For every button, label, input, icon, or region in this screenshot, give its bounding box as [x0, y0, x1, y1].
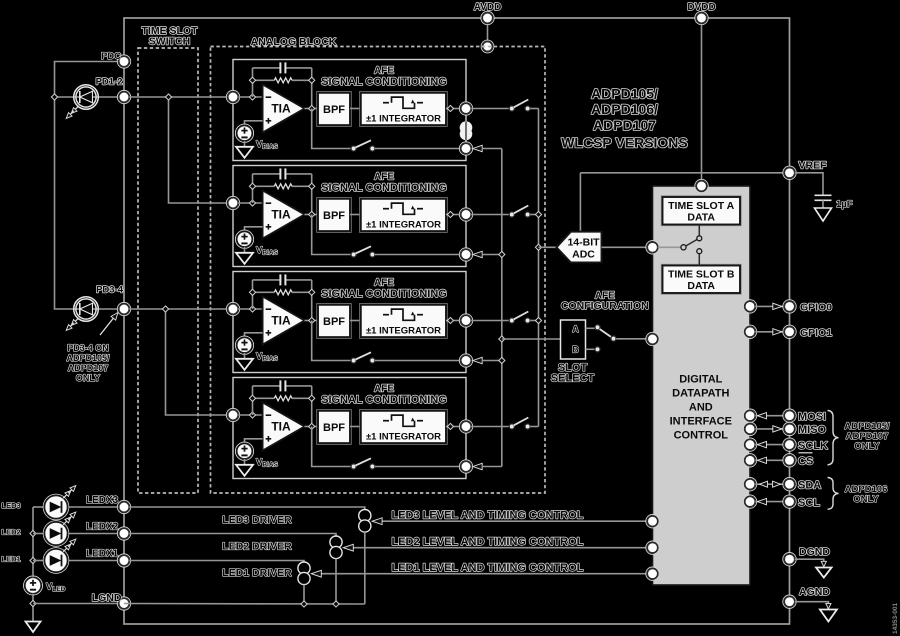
svg-text:1µF: 1µF: [836, 199, 853, 210]
svg-text:BPF: BPF: [323, 316, 345, 328]
svg-text:GPIO1: GPIO1: [800, 327, 832, 339]
svg-text:MISO: MISO: [798, 424, 827, 436]
svg-text:14353-001: 14353-001: [892, 603, 899, 634]
svg-text:LEDX1: LEDX1: [86, 549, 119, 560]
svg-text:ONLY: ONLY: [853, 494, 879, 505]
svg-text:ADPD107: ADPD107: [593, 117, 656, 133]
svg-text:DATA: DATA: [687, 280, 715, 292]
svg-text:ADC: ADC: [572, 248, 595, 260]
svg-text:LEDX3: LEDX3: [86, 495, 119, 506]
svg-text:TIA: TIA: [271, 420, 291, 434]
svg-text:INTERFACE: INTERFACE: [670, 416, 732, 428]
svg-text:AFE: AFE: [374, 66, 394, 77]
svg-text:DVDD: DVDD: [687, 2, 715, 13]
svg-text:BPF: BPF: [323, 422, 345, 434]
svg-text:DATA: DATA: [687, 211, 715, 223]
svg-text:±1 INTEGRATOR: ±1 INTEGRATOR: [366, 220, 441, 231]
svg-text:14-BIT: 14-BIT: [567, 236, 600, 248]
svg-text:GPIO0: GPIO0: [800, 302, 832, 314]
svg-text:ADPD105/: ADPD105/: [66, 353, 110, 363]
svg-text:ONLY: ONLY: [854, 441, 880, 452]
svg-text:AGND: AGND: [799, 586, 830, 598]
svg-text:LED2 LEVEL AND TIMING CONTROL: LED2 LEVEL AND TIMING CONTROL: [392, 536, 584, 548]
svg-text:AFE: AFE: [374, 384, 394, 395]
svg-text:MOSI: MOSI: [798, 411, 826, 423]
svg-text:TIA: TIA: [271, 102, 291, 116]
svg-text:LED3 LEVEL AND TIMING CONTROL: LED3 LEVEL AND TIMING CONTROL: [392, 510, 584, 522]
svg-text:TIME SLOT A: TIME SLOT A: [668, 200, 735, 212]
svg-text:DGND: DGND: [799, 546, 830, 558]
svg-text:DATAPATH: DATAPATH: [672, 388, 729, 400]
svg-text:TIA: TIA: [271, 314, 291, 328]
svg-text:A: A: [572, 324, 579, 334]
svg-text:CS: CS: [798, 456, 813, 468]
svg-text:SWITCH: SWITCH: [149, 36, 190, 48]
svg-text:TIME SLOT B: TIME SLOT B: [668, 268, 735, 280]
svg-text:VREF: VREF: [799, 159, 828, 171]
svg-text:TIA: TIA: [271, 208, 291, 222]
svg-text:LED2 DRIVER: LED2 DRIVER: [222, 541, 292, 553]
svg-text:PD3-4: PD3-4: [96, 285, 124, 296]
svg-text:SIGNAL CONDITIONING: SIGNAL CONDITIONING: [321, 182, 447, 194]
svg-text:LED2: LED2: [2, 528, 21, 537]
svg-text:WLCSP VERSIONS: WLCSP VERSIONS: [561, 135, 688, 151]
svg-text:BPF: BPF: [323, 104, 345, 116]
svg-text:LGND: LGND: [92, 592, 122, 604]
svg-text:LED1 DRIVER: LED1 DRIVER: [222, 567, 292, 579]
svg-text:SCLK: SCLK: [798, 440, 828, 452]
svg-text:AFE: AFE: [374, 172, 394, 183]
svg-text:PD1-2: PD1-2: [96, 77, 123, 88]
svg-text:BPF: BPF: [323, 210, 345, 222]
svg-text:B: B: [572, 344, 579, 354]
svg-text:LED1: LED1: [2, 555, 21, 564]
svg-text:±1 INTEGRATOR: ±1 INTEGRATOR: [366, 114, 441, 125]
svg-text:PD3-4 ON: PD3-4 ON: [67, 343, 109, 353]
svg-text:ADPD105/: ADPD105/: [591, 86, 658, 102]
svg-text:SDA: SDA: [798, 479, 821, 491]
svg-text:AVDD: AVDD: [474, 2, 502, 13]
svg-text:SIGNAL CONDITIONING: SIGNAL CONDITIONING: [321, 288, 447, 300]
svg-text:AND: AND: [689, 402, 713, 414]
svg-text:DIGITAL: DIGITAL: [679, 374, 722, 386]
svg-text:LEDX2: LEDX2: [86, 522, 119, 533]
svg-text:SIGNAL CONDITIONING: SIGNAL CONDITIONING: [321, 394, 447, 406]
svg-text:SIGNAL CONDITIONING: SIGNAL CONDITIONING: [321, 76, 447, 88]
svg-text:LED1 LEVEL AND TIMING CONTROL: LED1 LEVEL AND TIMING CONTROL: [392, 562, 584, 574]
svg-text:AFE: AFE: [374, 278, 394, 289]
svg-text:LED3: LED3: [2, 501, 21, 510]
svg-text:SELECT: SELECT: [551, 372, 595, 384]
svg-text:±1 INTEGRATOR: ±1 INTEGRATOR: [366, 432, 441, 443]
svg-text:LED3 DRIVER: LED3 DRIVER: [222, 514, 292, 526]
svg-text:SCL: SCL: [798, 497, 820, 509]
svg-text:ADPD107: ADPD107: [68, 363, 109, 373]
svg-text:PDC: PDC: [101, 51, 121, 62]
svg-text:CONTROL: CONTROL: [674, 430, 729, 442]
svg-text:±1 INTEGRATOR: ±1 INTEGRATOR: [366, 326, 441, 337]
svg-text:ANALOG BLOCK: ANALOG BLOCK: [251, 36, 337, 48]
svg-text:CONFIGURATION: CONFIGURATION: [561, 300, 649, 312]
svg-text:ONLY: ONLY: [76, 373, 100, 383]
svg-text:ADPD106/: ADPD106/: [591, 101, 658, 117]
